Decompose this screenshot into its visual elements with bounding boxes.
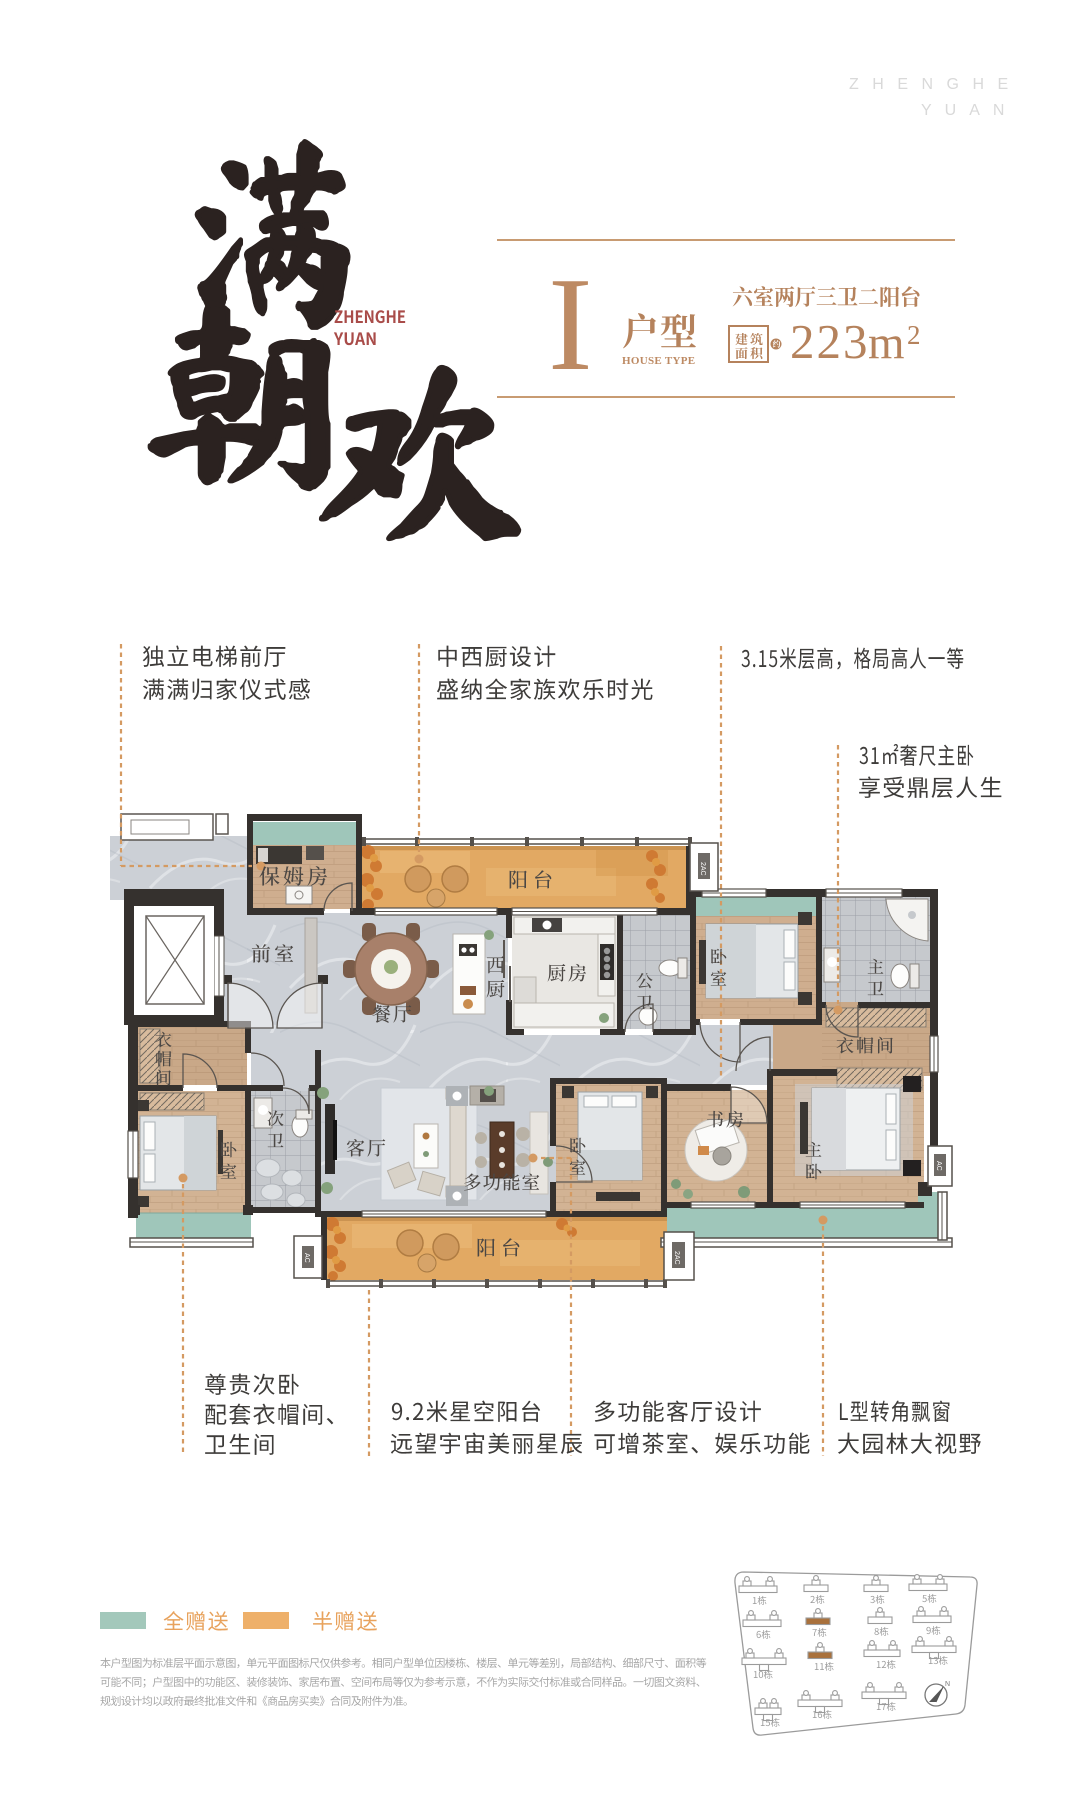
svg-text:HOUSE TYPE: HOUSE TYPE — [622, 355, 695, 367]
svg-text:AC: AC — [935, 1161, 942, 1171]
svg-text:2: 2 — [907, 320, 921, 350]
svg-text:AC: AC — [303, 1253, 310, 1263]
svg-text:2AC: 2AC — [673, 1251, 680, 1265]
svg-text:N: N — [945, 1681, 950, 1688]
svg-text:YUAN: YUAN — [921, 102, 1017, 119]
svg-text:2AC: 2AC — [699, 862, 706, 876]
svg-text:223: 223 — [790, 314, 870, 369]
svg-text:I: I — [548, 250, 593, 398]
svg-text:m: m — [868, 317, 905, 369]
svg-text:ZHENGHE: ZHENGHE — [849, 76, 1022, 93]
